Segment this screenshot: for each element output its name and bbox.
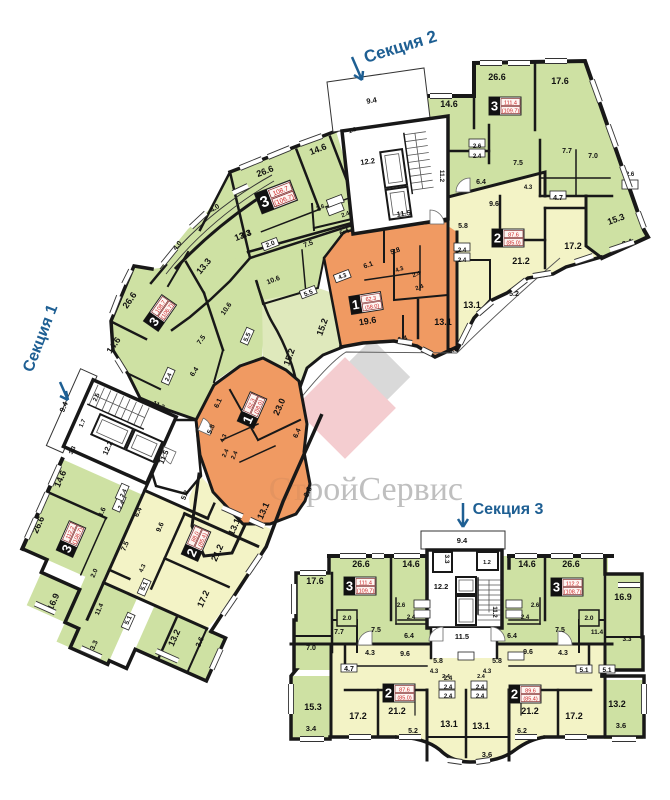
svg-text:7.5: 7.5 — [371, 627, 381, 634]
svg-text:26.6: 26.6 — [562, 559, 580, 569]
svg-text:16.9: 16.9 — [614, 592, 632, 602]
svg-text:4.3: 4.3 — [524, 185, 533, 191]
svg-text:17.6: 17.6 — [306, 576, 324, 586]
svg-text:3.6: 3.6 — [616, 721, 626, 730]
svg-text:5.1: 5.1 — [579, 667, 588, 674]
svg-text:9.6: 9.6 — [523, 649, 533, 656]
svg-text:11.2: 11.2 — [491, 606, 497, 618]
svg-text:17.2: 17.2 — [564, 241, 582, 251]
svg-text:17.2: 17.2 — [349, 711, 367, 721]
svg-text:(109.7): (109.7) — [357, 588, 375, 594]
svg-text:13.2: 13.2 — [608, 699, 626, 709]
svg-text:17.2: 17.2 — [565, 711, 583, 721]
svg-text:4.3: 4.3 — [430, 669, 439, 675]
svg-text:3: 3 — [346, 579, 353, 594]
svg-text:6.2: 6.2 — [517, 728, 527, 735]
svg-text:2.6: 2.6 — [531, 603, 540, 609]
svg-text:7.5: 7.5 — [513, 160, 523, 167]
svg-text:2.4: 2.4 — [476, 694, 485, 700]
svg-text:87.6: 87.6 — [508, 232, 519, 238]
svg-text:5.1: 5.1 — [602, 667, 611, 674]
svg-text:111.4: 111.4 — [359, 580, 372, 586]
svg-text:(85.4): (85.4) — [523, 696, 538, 702]
svg-text:21.2: 21.2 — [521, 706, 539, 716]
svg-text:2.4: 2.4 — [444, 676, 453, 682]
svg-text:7.5: 7.5 — [555, 627, 565, 634]
svg-text:2.0: 2.0 — [584, 615, 593, 622]
svg-text:1.2: 1.2 — [483, 560, 491, 566]
svg-text:14.6: 14.6 — [440, 99, 458, 109]
svg-text:2.4: 2.4 — [444, 694, 453, 700]
svg-text:5.2: 5.2 — [408, 728, 418, 735]
svg-text:4.7: 4.7 — [553, 195, 563, 202]
svg-text:5.8: 5.8 — [458, 223, 468, 230]
svg-text:2.4: 2.4 — [477, 674, 486, 680]
svg-text:5.8: 5.8 — [492, 658, 502, 665]
svg-text:(108.7): (108.7) — [564, 589, 582, 595]
svg-text:СтройСервис: СтройСервис — [269, 471, 463, 508]
svg-text:2: 2 — [385, 686, 392, 701]
svg-text:2: 2 — [511, 687, 518, 702]
svg-text:3: 3 — [491, 99, 498, 114]
svg-text:26.6: 26.6 — [488, 72, 506, 82]
svg-text:3: 3 — [553, 580, 560, 595]
svg-text:9.4: 9.4 — [457, 536, 468, 545]
svg-text:13.1: 13.1 — [463, 300, 481, 310]
svg-text:2.4: 2.4 — [407, 615, 416, 621]
svg-text:4.3: 4.3 — [558, 650, 568, 657]
svg-text:2.4: 2.4 — [476, 685, 485, 691]
svg-text:2.4: 2.4 — [521, 615, 530, 621]
svg-text:11.4: 11.4 — [591, 629, 604, 636]
svg-text:12.2: 12.2 — [434, 582, 449, 591]
svg-text:2.4: 2.4 — [444, 685, 453, 691]
svg-text:5.8: 5.8 — [433, 658, 443, 665]
svg-text:3.4: 3.4 — [306, 724, 317, 733]
svg-text:2.4: 2.4 — [458, 258, 467, 264]
svg-text:21.2: 21.2 — [388, 706, 406, 716]
svg-text:3.3: 3.3 — [622, 636, 631, 643]
svg-text:7.7: 7.7 — [562, 148, 572, 155]
svg-text:2.4: 2.4 — [458, 248, 467, 254]
svg-text:9.6: 9.6 — [489, 201, 499, 208]
svg-text:21.2: 21.2 — [512, 256, 530, 266]
svg-text:13.1: 13.1 — [472, 721, 490, 731]
svg-text:7.7: 7.7 — [334, 629, 344, 636]
svg-text:15.3: 15.3 — [304, 702, 322, 712]
svg-text:7.0: 7.0 — [306, 645, 316, 652]
svg-text:87.6: 87.6 — [399, 687, 410, 693]
svg-text:6.4: 6.4 — [404, 633, 414, 640]
svg-text:111.4: 111.4 — [504, 100, 517, 106]
svg-text:2.4: 2.4 — [473, 154, 482, 160]
svg-text:3.3: 3.3 — [443, 554, 450, 563]
svg-text:13.1: 13.1 — [440, 719, 458, 729]
svg-text:2: 2 — [494, 231, 501, 246]
svg-text:Секция 3: Секция 3 — [473, 501, 544, 518]
svg-text:17.6: 17.6 — [551, 76, 569, 86]
svg-text:4.3: 4.3 — [365, 650, 375, 657]
svg-text:112.2: 112.2 — [566, 581, 579, 587]
svg-text:7.0: 7.0 — [588, 153, 598, 160]
svg-text:26.6: 26.6 — [352, 559, 370, 569]
svg-text:6.4: 6.4 — [476, 179, 486, 186]
svg-text:(85.0): (85.0) — [506, 240, 521, 246]
svg-text:6.4: 6.4 — [507, 633, 517, 640]
svg-text:9.6: 9.6 — [400, 651, 410, 658]
svg-text:11.2: 11.2 — [438, 170, 445, 183]
svg-text:4.7: 4.7 — [344, 666, 354, 673]
svg-text:2.6: 2.6 — [473, 144, 482, 150]
svg-text:14.6: 14.6 — [402, 559, 420, 569]
svg-text:2.0: 2.0 — [342, 615, 351, 622]
svg-text:13.1: 13.1 — [434, 317, 452, 327]
svg-text:2.6: 2.6 — [397, 603, 406, 609]
svg-text:11.5: 11.5 — [455, 632, 469, 641]
svg-text:(85.0): (85.0) — [397, 695, 412, 701]
svg-text:14.6: 14.6 — [518, 559, 536, 569]
svg-text:(109.7): (109.7) — [502, 108, 520, 114]
svg-text:89.6: 89.6 — [525, 688, 536, 694]
